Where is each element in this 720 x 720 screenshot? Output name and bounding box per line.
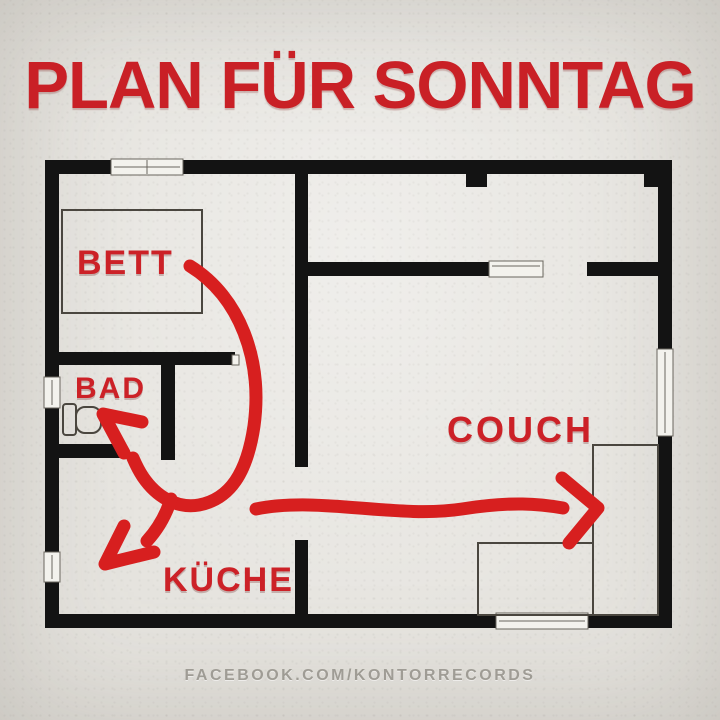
bett-bad-wall — [59, 352, 235, 365]
central-wall-lower — [295, 540, 308, 614]
route-bed-to-bath — [133, 266, 256, 506]
route-to-couch — [256, 504, 563, 512]
room-label-kueche: KÜCHE — [163, 563, 294, 597]
toilet-icon — [63, 404, 101, 435]
window-icon — [111, 159, 183, 175]
living-wall-left-segment — [308, 262, 490, 276]
living-wall-right-segment — [587, 262, 658, 276]
route-to-kitchen — [147, 499, 171, 541]
window-icon — [44, 552, 60, 582]
watermark-text: FACEBOOK.COM/KONTORRECORDS — [0, 668, 720, 684]
central-wall-upper — [295, 174, 308, 467]
room-label-couch: COUCH — [447, 412, 594, 448]
window-icon — [657, 349, 673, 436]
window-icon — [44, 377, 60, 408]
window-icon — [489, 261, 543, 277]
bad-south-wall — [59, 444, 120, 458]
room-label-bett: BETT — [77, 246, 174, 280]
room-label-bad: BAD — [75, 374, 146, 404]
door-jamb — [232, 355, 239, 365]
meme-title: PLAN FÜR SONNTAG — [0, 52, 720, 119]
corner-notch — [644, 174, 658, 187]
bad-east-wall — [161, 365, 175, 460]
top-door-stub — [466, 174, 487, 187]
couch-outline-icon — [478, 445, 658, 615]
